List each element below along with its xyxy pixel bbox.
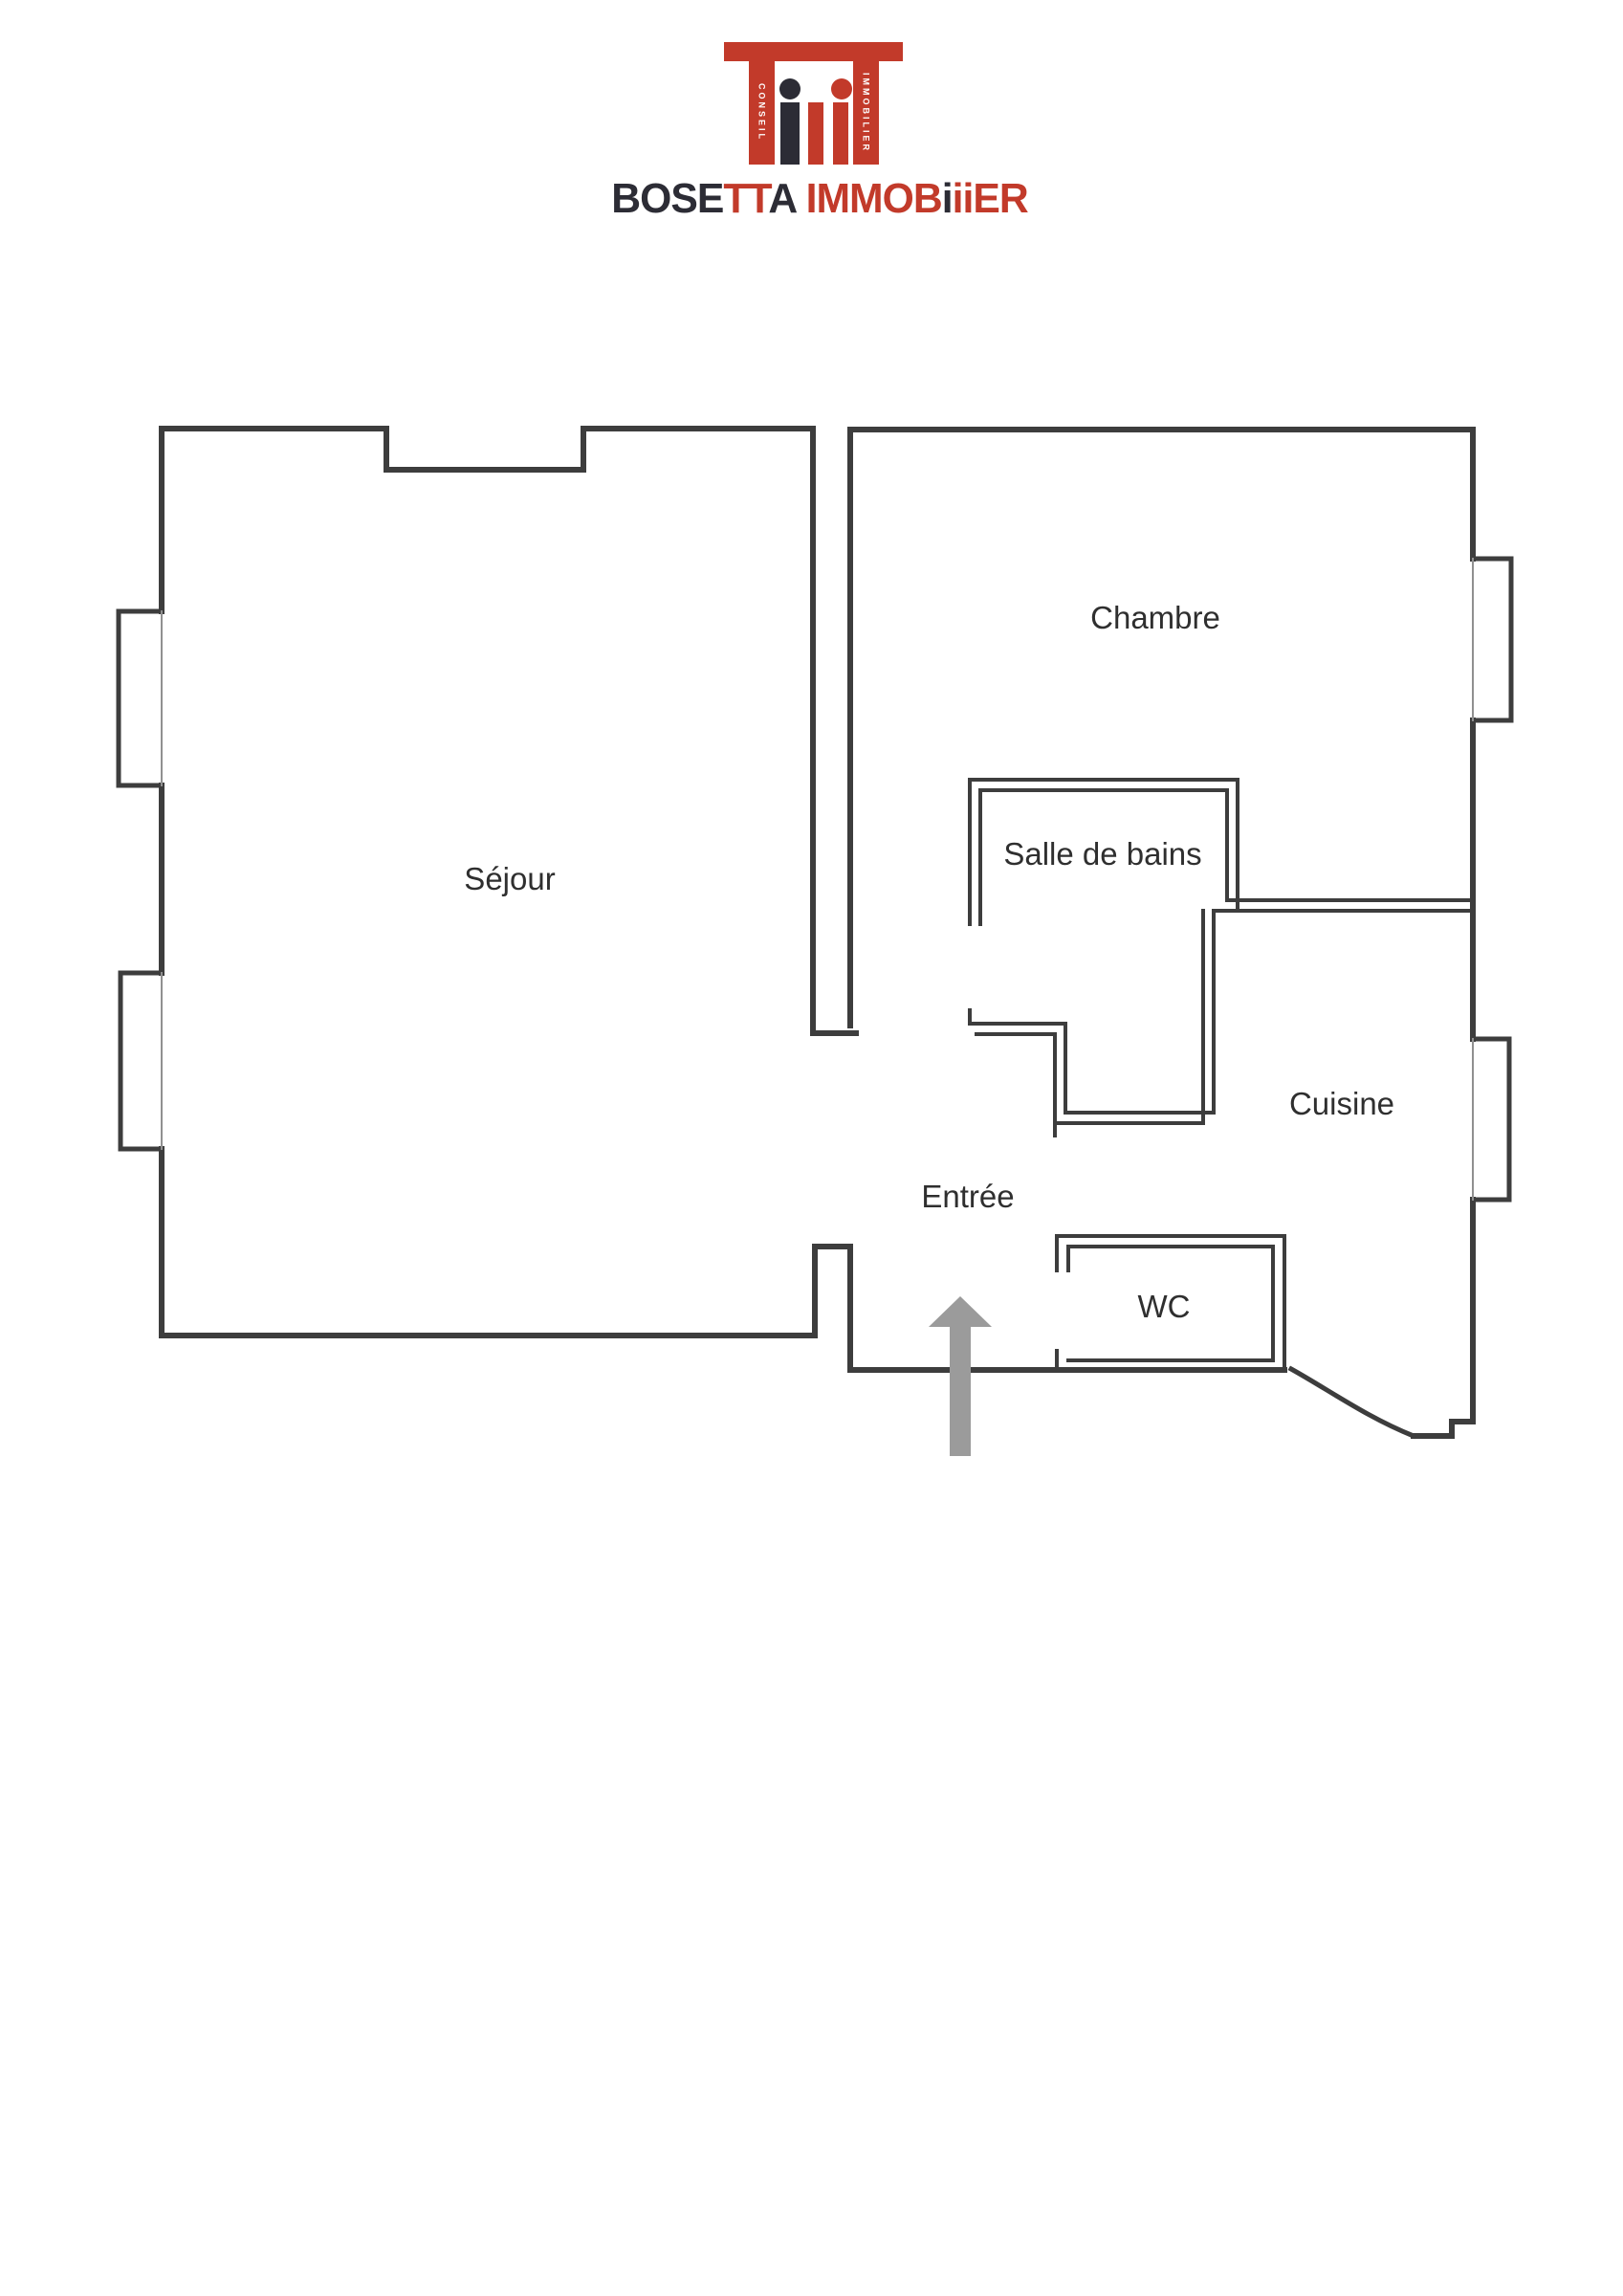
entrance-arrow-shaft [950,1326,971,1456]
room-label-cuisine: Cuisine [1289,1086,1394,1122]
wall-bottom-right-step [1414,1200,1473,1436]
window-bay-right-1 [1473,559,1511,720]
window-bay-left-1 [119,611,162,785]
room-label-salle-de-bains: Salle de bains [1003,836,1201,872]
room-label-sejour: Séjour [464,861,555,897]
room-label-chambre: Chambre [1090,600,1220,636]
page: CONSEIL IMMOBILIER BOSETTA IMMOBiiiER [0,0,1623,2296]
window-bay-right-2 [1473,1039,1509,1200]
wall-bottom [162,1149,1284,1370]
wall-hall-kitchen-outer [970,911,1214,1113]
wall-hall-kitchen-inner [976,911,1203,1123]
entrance-arrow-head [929,1296,992,1327]
wall-sejour-top-left [162,429,856,1033]
room-label-entree: Entrée [921,1179,1014,1215]
entrance-arrow [929,1296,992,1456]
room-label-wc: WC [1138,1289,1191,1325]
floor-plan-drawing [0,0,1623,2296]
door-swing-arc [1291,1369,1414,1436]
window-bay-left-2 [121,973,162,1149]
wall-chambre-top-right [850,430,1473,1026]
